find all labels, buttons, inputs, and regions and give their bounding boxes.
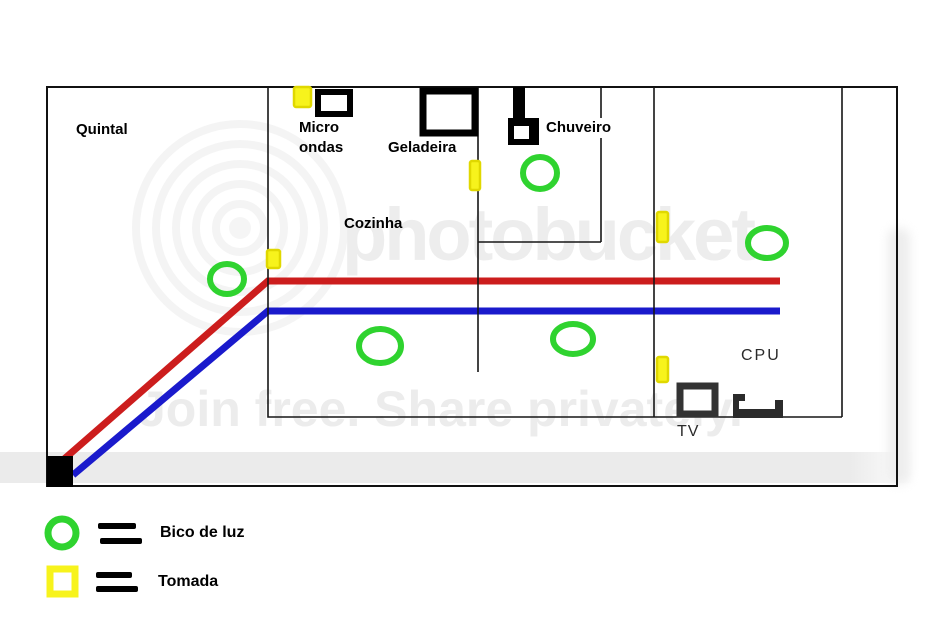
- legend-label-outlet: Tomada: [158, 573, 218, 591]
- fridge-label: Geladeira: [388, 138, 456, 158]
- legend-label-bulb: Bico de luz: [160, 524, 244, 542]
- legend-row-bulb: Bico de luz: [42, 513, 244, 553]
- room-label-cozinha: Cozinha: [344, 214, 402, 234]
- microwave-label: Micro ondas: [299, 118, 343, 158]
- outlet-legend-icon: [44, 564, 80, 600]
- legend-row-outlet: Tomada: [44, 564, 218, 600]
- shower-label: Chuveiro: [544, 118, 613, 138]
- tv-label: TV: [677, 422, 699, 442]
- equals-symbol: [94, 570, 142, 594]
- room-label-quintal: Quintal: [76, 120, 128, 140]
- light-bulb-legend-icon: [42, 513, 82, 553]
- floor-plan-page: photobucket Join free. Share privately. …: [0, 0, 951, 628]
- cpu-label: CPU: [741, 346, 781, 366]
- microwave-label-line1: Micro: [299, 118, 343, 138]
- equals-symbol: [96, 520, 144, 546]
- microwave-label-line2: ondas: [299, 138, 343, 158]
